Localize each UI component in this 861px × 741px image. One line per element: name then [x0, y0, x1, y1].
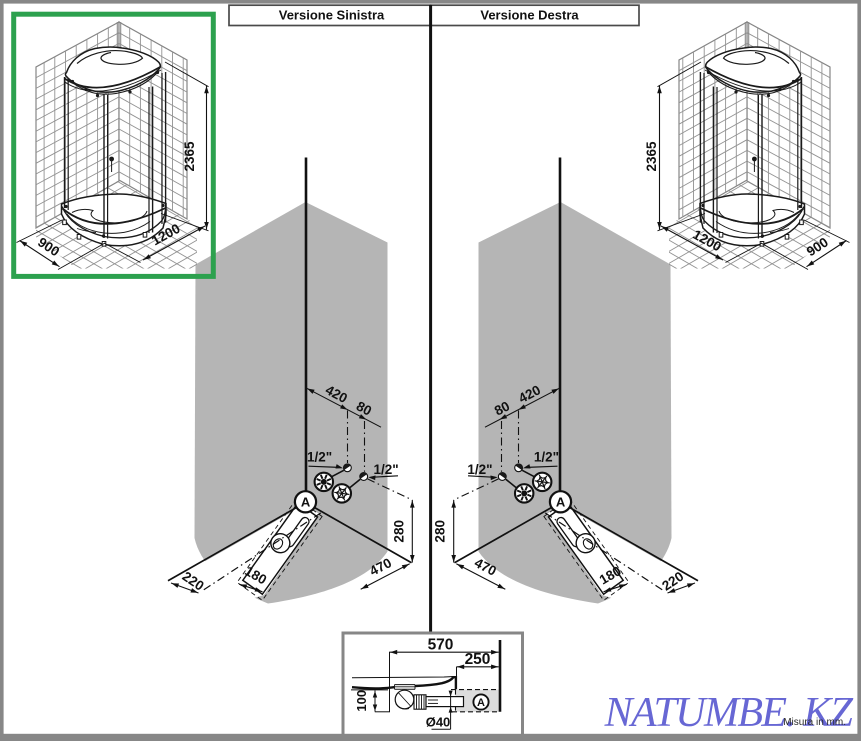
svg-text:280: 280: [392, 520, 407, 543]
svg-text:280: 280: [433, 520, 448, 543]
svg-text:1/2": 1/2": [534, 450, 559, 465]
svg-text:Versione Sinistra: Versione Sinistra: [279, 8, 385, 23]
svg-text:A: A: [301, 495, 311, 510]
svg-text:100: 100: [354, 690, 369, 712]
svg-text:A: A: [477, 697, 485, 709]
svg-text:NATUMBE. KZ: NATUMBE. KZ: [604, 690, 854, 736]
svg-text:250: 250: [465, 651, 491, 668]
svg-text:2365: 2365: [182, 141, 197, 172]
svg-text:Ø40: Ø40: [426, 715, 451, 730]
svg-text:Versione Destra: Versione Destra: [480, 8, 579, 23]
svg-text:Misura in mm.: Misura in mm.: [783, 717, 846, 728]
svg-text:A: A: [556, 495, 566, 510]
svg-text:1/2": 1/2": [307, 450, 332, 465]
svg-text:1/2": 1/2": [467, 462, 492, 477]
svg-text:2365: 2365: [644, 141, 659, 172]
svg-text:570: 570: [428, 637, 454, 654]
svg-text:1/2": 1/2": [374, 462, 399, 477]
